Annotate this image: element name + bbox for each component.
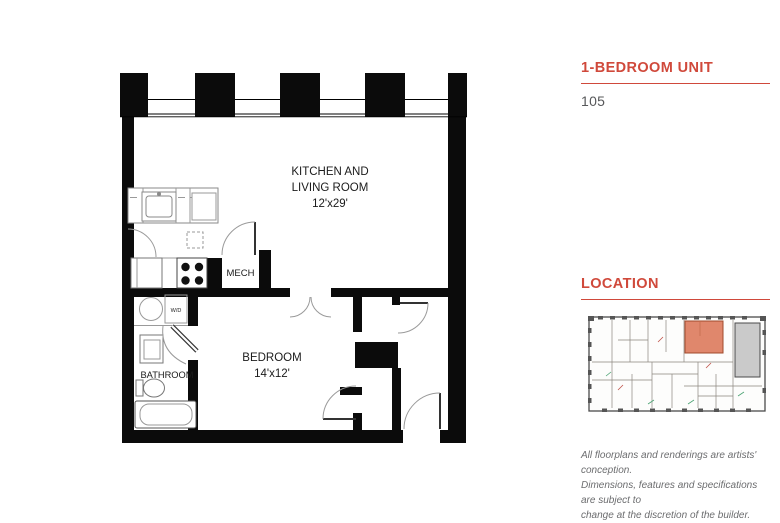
location-underline: [581, 299, 770, 300]
kitchen-counter: [128, 188, 218, 223]
disclaimer-line: All floorplans and renderings are artist…: [581, 448, 770, 478]
washer: [140, 298, 163, 321]
unit-type-title: 1-BEDROOM UNIT: [581, 60, 770, 76]
bedroom-label: BEDROOM: [242, 352, 301, 364]
disclaimer-line: change at the discretion of the builder.: [581, 508, 770, 523]
toilet-bowl: [144, 379, 165, 397]
bathroom-label: BATHROOM: [140, 370, 193, 380]
sidebar: 1-BEDROOM UNIT 105 LOCATION: [581, 0, 770, 517]
kitchen-living-label-line1: KITCHEN AND: [291, 166, 368, 178]
location-title: LOCATION: [581, 276, 770, 292]
stove: [177, 258, 207, 288]
bedroom-dimensions: 14'x12': [254, 368, 290, 380]
unit-header: 1-BEDROOM UNIT 105: [581, 60, 770, 109]
unit-number: 105: [581, 93, 770, 109]
disclaimer-line: Dimensions, features and specifications …: [581, 478, 770, 508]
washer-dryer-label: W/D: [171, 308, 182, 314]
building-core-block: [735, 323, 760, 377]
kitchen-appliances: [131, 232, 207, 288]
refrigerator: [131, 258, 162, 288]
location-floorplate-map: [588, 316, 766, 412]
location-section: LOCATION: [581, 276, 770, 300]
toilet-tank: [136, 380, 143, 396]
kitchen-living-label-line2: LIVING ROOM: [292, 182, 369, 194]
title-underline: [581, 83, 770, 84]
disclaimer-text: All floorplans and renderings are artist…: [581, 448, 770, 523]
bathroom-fixtures: [135, 335, 196, 428]
unit-floorplan: KITCHEN AND LIVING ROOM 12'x29' BEDROOM …: [0, 0, 520, 517]
kitchen-living-dimensions: 12'x29': [312, 198, 348, 210]
mech-label: MECH: [227, 268, 255, 279]
highlighted-unit: [685, 321, 723, 353]
